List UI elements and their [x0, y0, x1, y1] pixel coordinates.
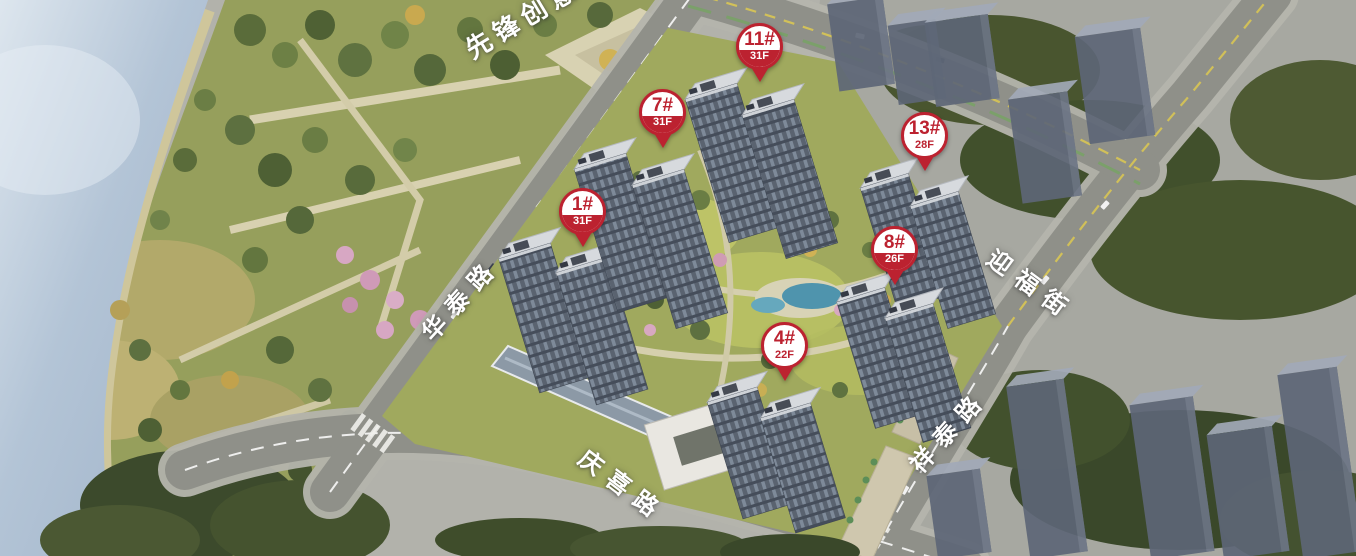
- tree: [258, 153, 292, 187]
- pin-building-number: 1#: [562, 191, 603, 215]
- pin-building-number: 8#: [874, 229, 915, 253]
- pin-building-number: 4#: [764, 325, 805, 349]
- swimming-pool: [782, 283, 842, 309]
- building-pin-4[interactable]: 4# 22F: [761, 322, 808, 381]
- tree: [170, 380, 190, 400]
- tree: [405, 5, 425, 25]
- tree: [272, 42, 298, 68]
- pin-circle: 1# 31F: [559, 188, 606, 235]
- tree: [242, 247, 268, 273]
- tree: [414, 54, 446, 86]
- tree: [305, 10, 335, 40]
- tree: [266, 336, 294, 364]
- pin-tail: [886, 270, 904, 285]
- pin-circle: 13# 28F: [901, 112, 948, 159]
- pin-floor-count: 26F: [874, 253, 915, 270]
- tree: [345, 165, 375, 195]
- aerial-scene: [0, 0, 1356, 556]
- kids-pool: [751, 297, 785, 313]
- tree: [129, 339, 151, 361]
- building-pin-1[interactable]: 1# 31F: [559, 188, 606, 247]
- tree: [393, 138, 417, 162]
- tree: [832, 382, 848, 398]
- pin-circle: 4# 22F: [761, 322, 808, 369]
- tree: [376, 321, 394, 339]
- pin-tail: [751, 67, 769, 82]
- tree: [225, 115, 255, 145]
- pin-tail: [574, 232, 592, 247]
- pin-tail: [776, 366, 794, 381]
- tree: [360, 270, 380, 290]
- pin-floor-count: 31F: [739, 50, 780, 67]
- tree: [342, 297, 358, 313]
- pin-floor-count: 28F: [904, 139, 945, 156]
- pin-floor-count: 31F: [562, 215, 603, 232]
- pin-circle: 8# 26F: [871, 226, 918, 273]
- building-pin-11[interactable]: 11# 31F: [736, 23, 783, 82]
- tree: [533, 13, 557, 37]
- tree: [234, 14, 266, 46]
- tree: [173, 148, 197, 172]
- pin-building-number: 13#: [904, 115, 945, 139]
- building-pin-13[interactable]: 13# 28F: [901, 112, 948, 171]
- pin-tail: [916, 156, 934, 171]
- tree: [587, 2, 613, 28]
- pin-circle: 11# 31F: [736, 23, 783, 70]
- pin-circle: 7# 31F: [639, 89, 686, 136]
- tree: [457, 17, 483, 43]
- tree: [386, 291, 404, 309]
- tree: [336, 246, 354, 264]
- tree: [381, 21, 409, 49]
- pin-building-number: 11#: [739, 26, 780, 50]
- pin-building-number: 7#: [642, 92, 683, 116]
- tree: [302, 127, 328, 153]
- pin-floor-count: 31F: [642, 116, 683, 133]
- tree: [221, 371, 239, 389]
- building-pin-8[interactable]: 8# 26F: [871, 226, 918, 285]
- tree: [286, 206, 314, 234]
- tree: [338, 43, 372, 77]
- tree: [490, 50, 520, 80]
- pin-tail: [654, 133, 672, 148]
- tree: [138, 418, 162, 442]
- tree: [644, 324, 656, 336]
- tree: [110, 300, 130, 320]
- pin-floor-count: 22F: [764, 349, 805, 366]
- tree: [194, 89, 216, 111]
- tree: [308, 378, 332, 402]
- building-pin-7[interactable]: 7# 31F: [639, 89, 686, 148]
- tree: [150, 210, 170, 230]
- tree: [713, 253, 727, 267]
